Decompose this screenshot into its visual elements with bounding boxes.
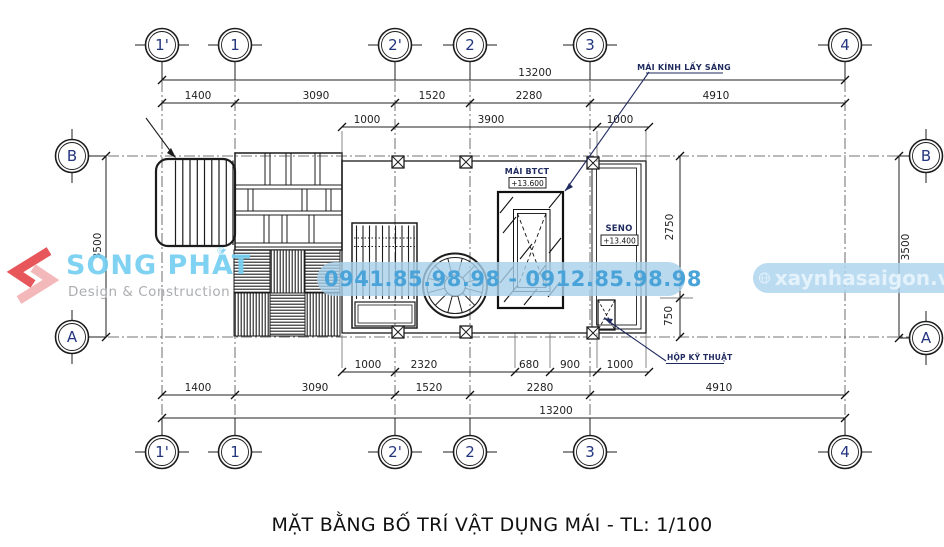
shelf-unit <box>235 153 342 250</box>
grid-left-A: A <box>67 328 78 346</box>
grid-top-2: 2 <box>465 36 475 54</box>
grid-top-2p: 2' <box>388 36 402 54</box>
dim-botsub-2320: 2320 <box>411 359 438 371</box>
roof-plan-page: 13200 1400 3090 1520 2280 4910 1000 3900… <box>0 0 944 547</box>
tech-box-label: HỘP KỸ THUẬT <box>667 353 733 362</box>
dim-botsub-680: 680 <box>519 359 539 371</box>
song-phat-logo-icon <box>4 246 62 306</box>
dim-right-3500: 3500 <box>900 234 912 261</box>
website-url: xaynhasaigon.vn <box>775 266 944 290</box>
dim-top-1520: 1520 <box>419 90 446 102</box>
grid-bot-1p: 1' <box>155 443 169 461</box>
registered-mark: ® <box>216 246 226 257</box>
dim-bottom-total: 13200 <box>539 405 572 417</box>
roof-slab-label: MÁI BTCT <box>505 165 550 176</box>
grid-bot-3: 3 <box>585 443 595 461</box>
grid-top-1p: 1' <box>155 36 169 54</box>
grid-bot-1: 1 <box>230 443 240 461</box>
dim-bot-1520: 1520 <box>416 382 443 394</box>
dim-right-2750: 2750 <box>664 214 676 241</box>
tech-box <box>598 300 615 330</box>
dim-botsub-900: 900 <box>560 359 580 371</box>
grid-top-4: 4 <box>840 36 850 54</box>
dim-top-1400: 1400 <box>185 90 212 102</box>
dim-topsub-3900: 3900 <box>478 114 505 126</box>
grid-left-B: B <box>67 147 77 165</box>
dim-top-4910: 4910 <box>703 90 730 102</box>
phone-numbers: 0941.85.98.98 - 0912.85.98.98 <box>324 267 702 291</box>
grid-bot-2: 2 <box>465 443 475 461</box>
dim-botsub-1000b: 1000 <box>607 359 634 371</box>
grid-bot-2p: 2' <box>388 443 402 461</box>
grid-right-B: B <box>921 147 931 165</box>
gutter-label: SENO <box>605 224 632 234</box>
roof-slab-level: +13.600 <box>511 179 544 188</box>
logo-tagline: Design & Construction <box>68 284 230 300</box>
dim-botsub-1000a: 1000 <box>355 359 382 371</box>
dim-topsub-1000a: 1000 <box>354 114 381 126</box>
grid-bot-4: 4 <box>840 443 850 461</box>
dim-bot-2280: 2280 <box>527 382 554 394</box>
watermark-website: xaynhasaigon.vn <box>753 263 944 293</box>
skylight-label: MÁI KÍNH LẤY SÁNG <box>637 60 731 72</box>
dim-top-3090: 3090 <box>303 90 330 102</box>
dim-top-2280: 2280 <box>516 90 543 102</box>
globe-icon <box>758 264 771 292</box>
roof-slab-outline <box>342 161 646 333</box>
dim-bot-4910: 4910 <box>706 382 733 394</box>
drawing-title: MẶT BẰNG BỐ TRÍ VẬT DỤNG MÁI - TL: 1/100 <box>40 514 944 536</box>
dim-topsub-1000b: 1000 <box>607 114 634 126</box>
grid-top-1: 1 <box>230 36 240 54</box>
dim-bot-3090: 3090 <box>302 382 329 394</box>
dim-top-total: 13200 <box>518 67 551 79</box>
grid-right-A: A <box>921 329 932 347</box>
plan-labels: MÁI KÍNH LẤY SÁNG MÁI BTCT +13.600 SENO … <box>505 60 733 362</box>
grid-top-3: 3 <box>585 36 595 54</box>
dimension-texts: 13200 1400 3090 1520 2280 4910 1000 3900… <box>92 67 912 417</box>
gutter-level: +13.400 <box>603 236 636 245</box>
dim-right-750: 750 <box>663 306 675 326</box>
striped-deck <box>156 159 235 246</box>
watermark-phone: 0941.85.98.98 - 0912.85.98.98 <box>317 262 685 296</box>
watermark-logo: SONG PHÁT ® Design & Construction <box>4 246 244 308</box>
column-markers <box>392 156 599 339</box>
dim-bot-1400: 1400 <box>185 382 212 394</box>
